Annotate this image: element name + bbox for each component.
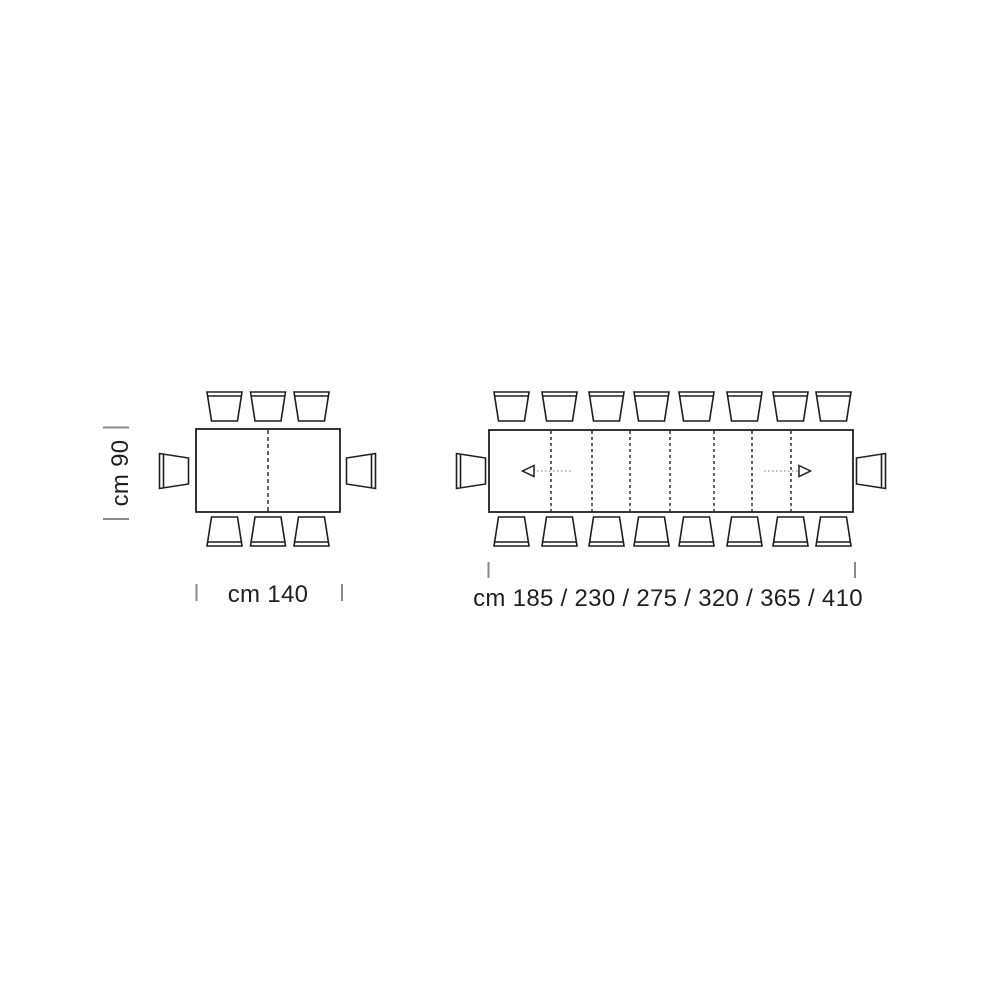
chair-icon xyxy=(251,517,286,546)
chair-icon xyxy=(816,392,851,421)
dimension-diagram-page: cm 90 cm 140 xyxy=(0,0,1000,1000)
chair-icon xyxy=(294,517,329,546)
depth-dimension-label: cm 90 xyxy=(107,440,134,507)
chair-icon xyxy=(679,517,714,546)
chair-icon xyxy=(857,454,886,489)
extending-table-diagram: cm 185 / 230 / 275 / 320 / 365 / 410 xyxy=(457,392,886,612)
chair-icon xyxy=(679,392,714,421)
chair-icon xyxy=(634,392,669,421)
chair-icon xyxy=(773,392,808,421)
fixed-table-top xyxy=(196,429,340,512)
chair-icon xyxy=(816,517,851,546)
extension-dimension-label: cm 185 / 230 / 275 / 320 / 365 / 410 xyxy=(473,585,863,612)
chair-icon xyxy=(727,517,762,546)
fixed-table-diagram: cm 90 cm 140 xyxy=(103,392,376,608)
chair-icon xyxy=(589,517,624,546)
chair-icon xyxy=(542,517,577,546)
tables-dimension-diagram: cm 90 cm 140 xyxy=(0,0,1000,1000)
chair-icon xyxy=(294,392,329,421)
width-dimension-label: cm 140 xyxy=(228,581,309,608)
chair-icon xyxy=(457,454,486,489)
chair-icon xyxy=(589,392,624,421)
chair-icon xyxy=(207,517,242,546)
width-dimension: cm 140 xyxy=(197,581,343,608)
chair-icon xyxy=(347,454,376,489)
extension-dimension: cm 185 / 230 / 275 / 320 / 365 / 410 xyxy=(473,562,863,612)
chair-icon xyxy=(494,517,529,546)
depth-dimension: cm 90 xyxy=(103,428,134,520)
chair-icon xyxy=(727,392,762,421)
chair-icon xyxy=(251,392,286,421)
chair-icon xyxy=(160,454,189,489)
chair-icon xyxy=(634,517,669,546)
chair-icon xyxy=(207,392,242,421)
chair-icon xyxy=(494,392,529,421)
chair-icon xyxy=(542,392,577,421)
chair-icon xyxy=(773,517,808,546)
